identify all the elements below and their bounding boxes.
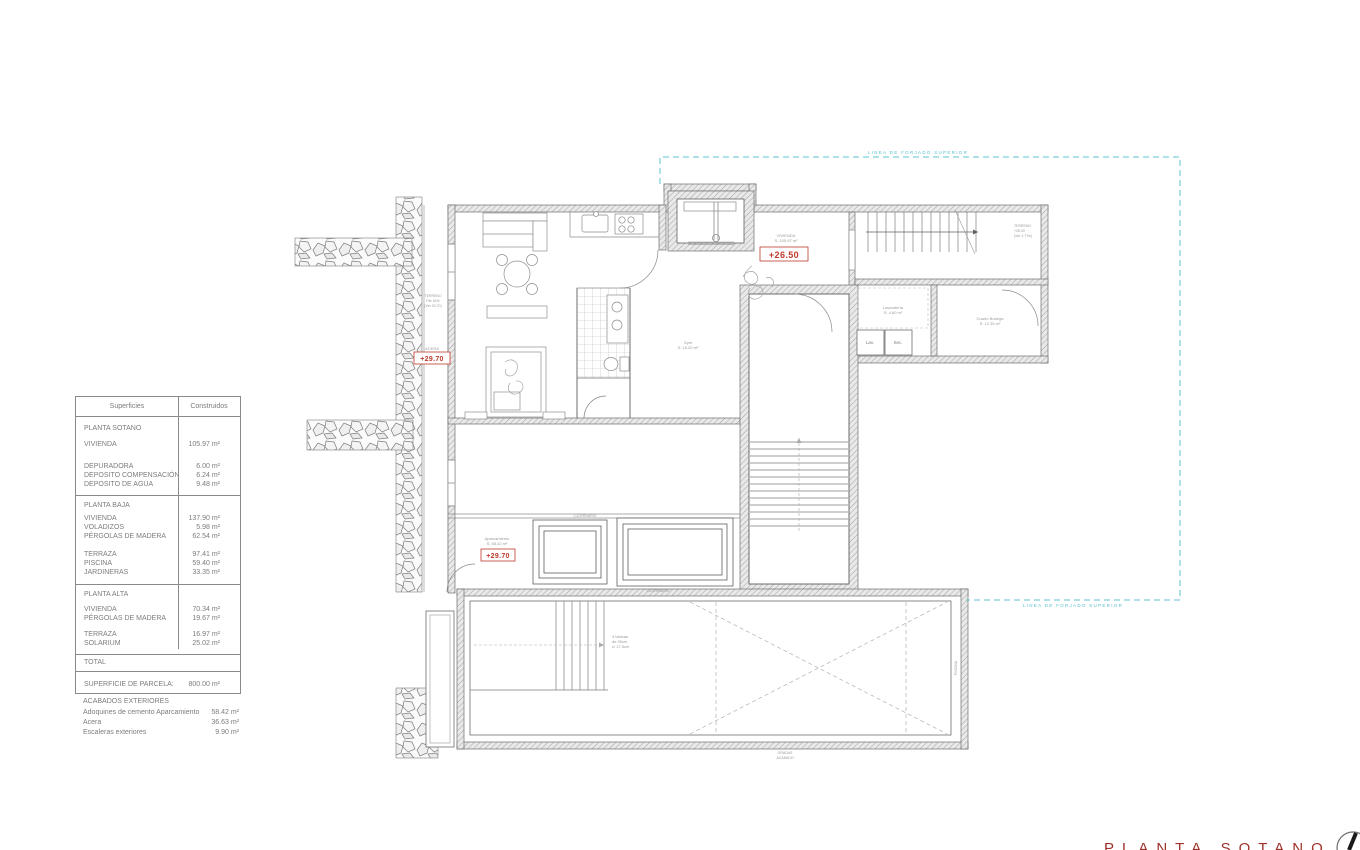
kitchen bbox=[570, 212, 659, 238]
skylight-label: LUCERNARIO bbox=[647, 589, 670, 593]
section-title-baja: PLANTA BAJA bbox=[76, 501, 240, 510]
chair-icon bbox=[497, 284, 508, 295]
table-row: PISCINA 59.40 m² bbox=[76, 559, 240, 568]
sideboard-icon bbox=[487, 306, 547, 318]
table-row: DEPURADORA 6.00 m² bbox=[76, 462, 240, 471]
terrain-note-line1: TERRENO bbox=[1014, 224, 1031, 228]
table-row: TERRAZA 97.41 m² bbox=[76, 550, 240, 559]
central-stairwell bbox=[749, 294, 849, 584]
stair-note-line3: c/ 17.5cm bbox=[612, 644, 630, 649]
pool-side-label: PISCINA bbox=[954, 660, 958, 675]
sofa-icon bbox=[483, 213, 547, 221]
sidewalk-strip bbox=[424, 205, 448, 592]
chair-icon bbox=[527, 255, 538, 266]
terrain-left-line3: (Ver 29.70) bbox=[424, 304, 441, 308]
table-row: DEPOSITO COMPENSACIÓN 6.24 m² bbox=[76, 471, 240, 480]
section-divider bbox=[76, 671, 240, 672]
level-label-parking: +29.70 bbox=[486, 553, 509, 560]
planter-strip bbox=[426, 611, 454, 747]
table-row: PÉRGOLAS DE MADERA 19.67 m² bbox=[76, 614, 240, 623]
table-row: VIVIENDA 70.34 m² bbox=[76, 605, 240, 614]
level-label-hall: +26.50 bbox=[769, 250, 799, 260]
level-label-acera: +29.70 bbox=[420, 356, 443, 363]
slab-line-label-top: LINEA DE FORJADO SUPERIOR bbox=[868, 150, 968, 155]
table-header: Superficies Construidos bbox=[76, 397, 240, 417]
areas-table-box: Superficies Construidos PLANTA SOTANO VI… bbox=[75, 396, 241, 694]
list-item: Escaleras exteriores 9.90 m² bbox=[83, 728, 239, 737]
table-row: VIVIENDA 137.90 m² bbox=[76, 514, 240, 523]
table-row: DEPOSITO DE AGUA 9.48 m² bbox=[76, 480, 240, 489]
gym-room: Gym S: 15.20 m² bbox=[678, 340, 699, 350]
washer-label: Lav. bbox=[866, 340, 874, 345]
section-divider bbox=[76, 654, 240, 655]
storage-area-label: S: 12.35 m² bbox=[980, 321, 1001, 326]
rock-hatching bbox=[295, 197, 438, 758]
skylight-label: LUCERNARIO bbox=[574, 514, 597, 518]
dryer-label: Sec. bbox=[893, 340, 902, 345]
door-arc bbox=[1002, 290, 1038, 326]
header-superficies: Superficies bbox=[76, 403, 178, 410]
chair-icon bbox=[497, 255, 508, 266]
total-label: TOTAL bbox=[76, 658, 240, 667]
pool-terrace: 4 tabicas de 30cm c/ 17.5cm GRADAS ACABA… bbox=[470, 601, 958, 760]
table-row: VIVIENDA 105.97 m² bbox=[76, 440, 240, 449]
toilet-icon bbox=[604, 358, 618, 371]
table-row: PÉRGOLAS DE MADERA 62.54 m² bbox=[76, 532, 240, 541]
table-row: SOLARIUM 25.02 m² bbox=[76, 639, 240, 648]
living-furniture bbox=[465, 213, 565, 419]
table-row: TERRAZA 16.97 m² bbox=[76, 630, 240, 639]
slab-line-label-bottom: LINEA DE FORJADO SUPERIOR bbox=[1023, 603, 1123, 608]
parking-area-label: S: 58.42 m² bbox=[487, 541, 508, 546]
exterior-finishes-title: ACABADOS EXTERIORES bbox=[83, 697, 239, 707]
faucet-icon bbox=[594, 212, 599, 217]
parking-level: Aparcamiento S: 58.42 m² +29.70 bbox=[447, 536, 515, 592]
pool-note-line2: ACABADO bbox=[776, 756, 793, 760]
table-row: VOLADIZOS 5.98 m² bbox=[76, 523, 240, 532]
terrain-left-line1: TERRENO bbox=[424, 294, 441, 298]
elevator bbox=[668, 191, 754, 251]
section-divider bbox=[76, 584, 240, 585]
terrain-note-line3: (Ver 1.77m) bbox=[1014, 234, 1032, 238]
hall-area-label: S: 105.97 m² bbox=[775, 238, 799, 243]
storage-room: Cuarto Bodega S: 12.35 m² bbox=[977, 290, 1038, 326]
drawing-title: PLANTA SOTANO bbox=[1104, 840, 1331, 850]
door-arc bbox=[584, 396, 606, 418]
terrain-note-right: TERRENO +28.00 (Ver 1.77m) bbox=[1014, 224, 1032, 238]
pool-note-line1: GRADAS bbox=[778, 751, 793, 755]
section-title-alta: PLANTA ALTA bbox=[76, 590, 240, 599]
door-arc bbox=[620, 250, 658, 288]
drawing-sheet: { "title_block": { "title": "PLANTA SOTA… bbox=[0, 0, 1360, 850]
chair-icon bbox=[527, 284, 538, 295]
north-logo-icon bbox=[1333, 828, 1360, 850]
laundry-area-label: S: 4.60 m² bbox=[884, 310, 903, 315]
drawing-title-block: PLANTA SOTANO bbox=[1104, 828, 1360, 850]
bathroom bbox=[577, 288, 630, 418]
section-title-sotano: PLANTA SOTANO bbox=[76, 424, 240, 433]
parcela-row: SUPERFICIE DE PARCELA: 800.00 m² bbox=[76, 680, 240, 689]
acera-label: ACERA bbox=[425, 346, 439, 351]
upper-stairs bbox=[866, 210, 978, 254]
gym-area-label: S: 15.20 m² bbox=[678, 345, 699, 350]
header-construidos: Construidos bbox=[178, 403, 240, 410]
dining-table-icon bbox=[504, 261, 530, 287]
list-item: Acera 36.63 m² bbox=[83, 718, 239, 727]
laundry-room: Lav. Sec. Lavandería S: 4.60 m² bbox=[857, 288, 928, 355]
areas-table: Superficies Construidos PLANTA SOTANO VI… bbox=[75, 396, 241, 694]
terrain-note-line2: +28.00 bbox=[1014, 229, 1025, 233]
list-item: Adoquines de cemento Aparcamiento 58.42 … bbox=[83, 708, 239, 717]
exterior-finishes: ACABADOS EXTERIORES Adoquines de cemento… bbox=[83, 697, 239, 737]
terrain-left-line2: Pte 16% bbox=[426, 299, 439, 303]
table-row: JARDINERAS 33.35 m² bbox=[76, 568, 240, 577]
sink-icon bbox=[582, 215, 608, 232]
table-column-divider bbox=[178, 397, 179, 649]
section-divider bbox=[76, 495, 240, 496]
